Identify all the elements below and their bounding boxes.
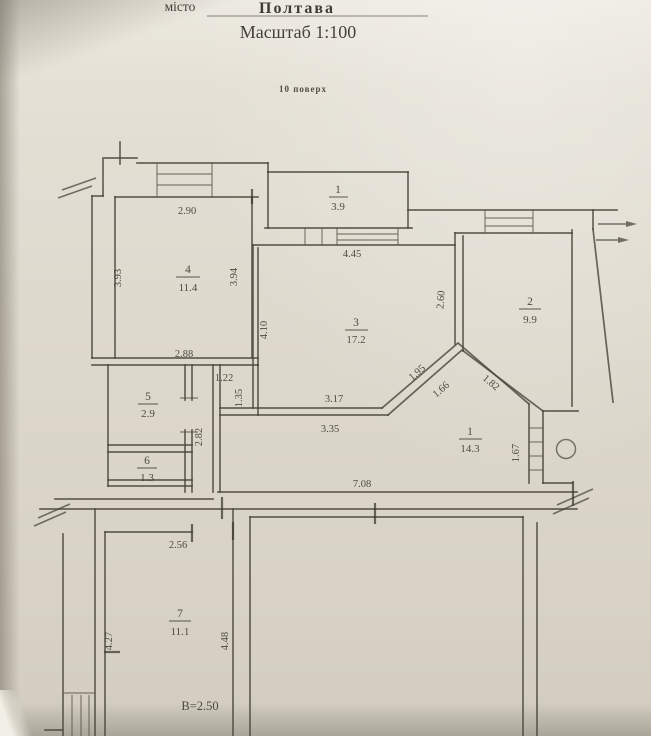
dim-diagonal-a: 1.95 bbox=[407, 363, 428, 383]
header: місто Полтава Масштаб 1:100 10 поверх bbox=[165, 0, 428, 94]
room2-area: 9.9 bbox=[523, 314, 537, 326]
room7-area: 11.1 bbox=[171, 626, 190, 638]
floor-text: 10 поверх bbox=[279, 84, 327, 94]
room5-area: 2.9 bbox=[141, 408, 155, 420]
wall-break-marks bbox=[34, 178, 637, 526]
dim-corridor-wall-a: 3.17 bbox=[325, 394, 343, 405]
room4-number: 4 bbox=[185, 264, 191, 276]
room-labels: 1 3.9 2 9.9 3 17.2 4 11.4 5 2.9 6 1.3 7 … bbox=[137, 184, 541, 638]
dim-room7-right: 4.48 bbox=[220, 632, 231, 650]
dim-hall-depth: 1.35 bbox=[234, 389, 245, 407]
balcony-number: 1 bbox=[335, 184, 341, 196]
corridor-area: 14.3 bbox=[460, 443, 480, 455]
room6-area: 1.3 bbox=[140, 472, 154, 484]
dim-hall-vert: 2.82 bbox=[194, 428, 205, 446]
dim-hall-width: 1.22 bbox=[215, 373, 233, 384]
dim-corridor-wall-b: 3.35 bbox=[321, 424, 339, 435]
dim-room4-right: 3.94 bbox=[229, 267, 240, 286]
dim-room3-right: 2.60 bbox=[435, 290, 447, 309]
room3-number: 3 bbox=[353, 317, 359, 329]
floorplan-drawing: 1 3.9 2 9.9 3 17.2 4 11.4 5 2.9 6 1.3 7 … bbox=[0, 0, 651, 736]
room5-number: 5 bbox=[145, 391, 151, 403]
room3-area: 17.2 bbox=[346, 334, 365, 346]
dim-room4-top: 2.90 bbox=[178, 206, 196, 217]
ceiling-height-note: В=2.50 bbox=[181, 699, 218, 713]
city-label: місто bbox=[165, 0, 196, 14]
dimension-labels: 2.90 3.93 3.94 4.45 4.10 2.60 2.88 1.22 … bbox=[104, 206, 522, 713]
scale-text: Масштаб 1:100 bbox=[240, 22, 357, 42]
dim-room7-top: 2.56 bbox=[169, 540, 187, 551]
dim-corridor-bottom: 7.08 bbox=[353, 479, 371, 490]
balcony-area: 3.9 bbox=[331, 201, 345, 213]
dim-corridor-right: 1.67 bbox=[511, 444, 522, 462]
dimension-ticks bbox=[104, 189, 573, 652]
dim-room3-left: 4.10 bbox=[259, 321, 270, 339]
room7-number: 7 bbox=[177, 608, 183, 620]
floorplan-scan: 1 3.9 2 9.9 3 17.2 4 11.4 5 2.9 6 1.3 7 … bbox=[0, 0, 651, 736]
room2-number: 2 bbox=[527, 296, 533, 308]
dim-diagonal-c: 1.82 bbox=[480, 373, 501, 393]
room6-number: 6 bbox=[144, 455, 150, 467]
corridor-number: 1 bbox=[467, 426, 473, 438]
dim-diagonal-b: 1.66 bbox=[431, 380, 452, 400]
dim-room3-top: 4.45 bbox=[343, 249, 361, 260]
room4-area: 11.4 bbox=[179, 282, 198, 294]
door-circle-symbol bbox=[557, 440, 576, 459]
walls bbox=[40, 142, 617, 736]
dim-room7-left: 4.27 bbox=[104, 632, 115, 650]
dim-room4-left: 3.93 bbox=[113, 269, 124, 287]
city-name: Полтава bbox=[259, 0, 335, 17]
dim-room5-top: 2.88 bbox=[175, 349, 193, 360]
